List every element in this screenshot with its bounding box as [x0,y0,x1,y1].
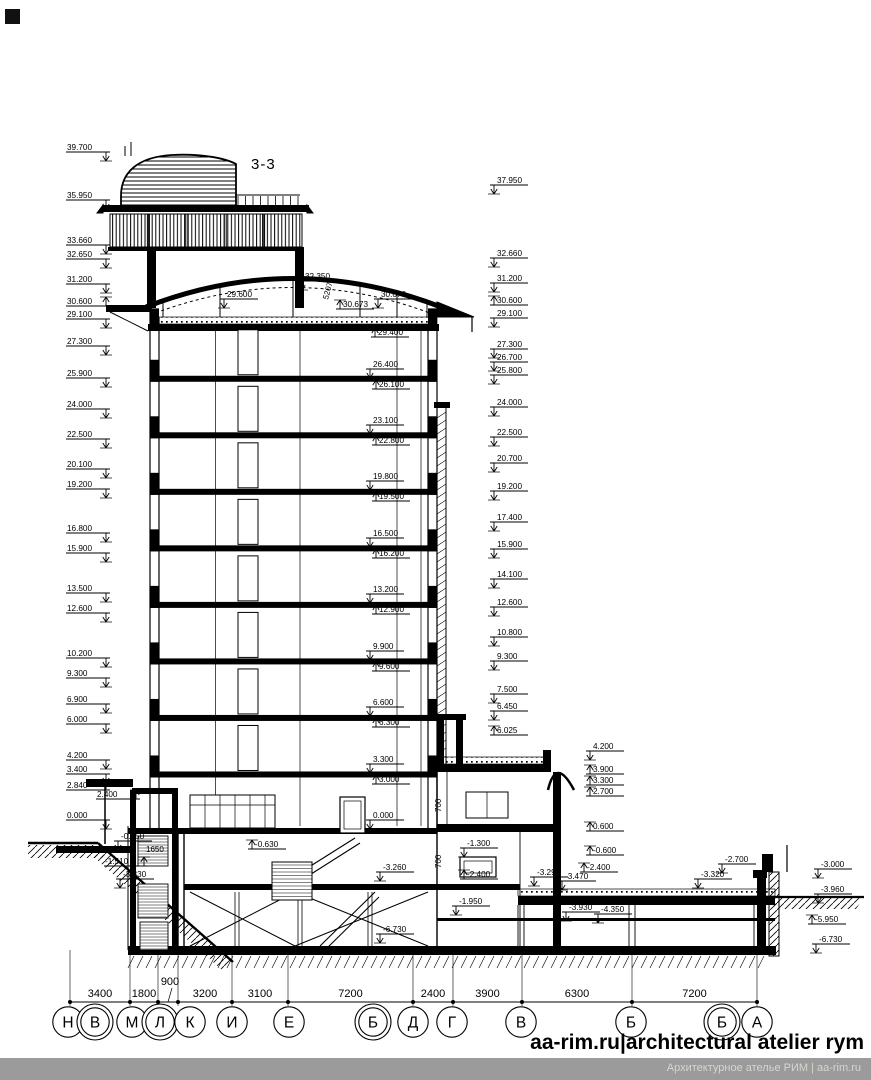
level-mark-label: 39.700 [67,143,92,152]
level-mark-label: 37.950 [497,176,522,185]
level-mark-label: 27.300 [497,340,522,349]
level-mark-label: 3.400 [67,765,88,774]
axis-label: Е [284,1015,294,1032]
dimension-label: 1800 [132,988,156,1000]
level-mark-label: -2.400 [587,863,611,872]
level-mark-label: 12.600 [67,604,92,613]
level-mark-label: -3.930 [569,903,593,912]
level-mark-label: 30.070 [381,290,406,299]
dimension-label: 3900 [475,988,499,1000]
level-mark-label: 16.800 [67,524,92,533]
dimension-label: 7200 [338,988,362,1000]
axis-label: М [126,1015,139,1032]
level-mark-label: 0.600 [593,822,614,831]
axis-bubble: Д [398,1007,428,1037]
level-mark-label: 17.400 [497,513,522,522]
podium-basement [128,764,776,955]
level-mark-label: 6.450 [497,702,518,711]
level-mark-label: -2.400 [467,870,491,879]
level-mark-label: 0.000 [67,811,88,820]
level-mark-label: 29.100 [497,309,522,318]
level-mark-label: 31.200 [497,274,522,283]
level-mark-label: 6.000 [67,715,88,724]
level-mark-label: 10.200 [67,649,92,658]
axis-bubble: Е [274,1007,304,1037]
dimension-chain: 340018009003200310072002400390063007200 [68,950,759,1006]
level-mark-label: -3.330 [123,870,147,879]
level-mark-label: 15.900 [67,544,92,553]
dimension-label: 3400 [88,988,112,1000]
level-mark-label: 12.600 [497,598,522,607]
level-mark-label: -1.950 [459,897,483,906]
level-mark-label: 32.660 [497,249,522,258]
level-mark-label: 24.000 [497,398,522,407]
level-mark-label: 2.400 [97,790,118,799]
axis-bubble: Б [355,1004,391,1040]
level-mark-label: -3.960 [821,885,845,894]
level-mark-label: 6.025 [497,726,518,735]
level-mark-label: 31.200 [67,275,92,284]
level-mark-label: 10.800 [497,628,522,637]
level-mark-label: 16.200 [379,549,404,558]
level-mark-label: 6.300 [379,718,400,727]
level-mark-label: -2.700 [725,855,749,864]
level-mark-label: 27.300 [67,337,92,346]
level-mark-label: -1.510 [105,857,129,866]
level-mark-label: 9.300 [67,669,88,678]
axis-label: В [516,1015,526,1032]
level-mark-label: 32.650 [67,250,92,259]
axis-label: Л [155,1015,165,1032]
level-mark-label: -3.260 [383,863,407,872]
level-mark-label: 4.200 [593,742,614,751]
level-mark-label: 30.673 [343,300,368,309]
axis-bubble: К [175,1007,205,1037]
level-mark-label: 13.500 [67,584,92,593]
level-mark-label: -0.950 [121,832,145,841]
level-mark-label: 29.600 [227,290,252,299]
level-mark-label: 0.000 [373,811,394,820]
level-mark-label: 25.900 [67,369,92,378]
level-mark-label: -6.730 [383,925,407,934]
level-mark-label: 2.840 [67,781,88,790]
dimension-label: 3100 [248,988,272,1000]
level-mark-label: 9.300 [497,652,518,661]
annotation-label: 700 [434,798,443,812]
axis-label: Б [368,1015,378,1032]
right-level-marks: 37.95032.66031.20030.60029.10027.30026.7… [488,176,624,855]
level-mark-label: 9.600 [379,662,400,671]
axis-label: Д [408,1015,419,1032]
level-mark-label: -3.290 [537,868,561,877]
dimension-label: 2400 [421,988,445,1000]
level-mark-label: 33.660 [67,236,92,245]
axis-label: А [752,1015,763,1032]
level-mark-label: 23.100 [373,416,398,425]
level-mark-label: 29.400 [378,328,403,337]
annotation-label: 1650 [146,845,164,854]
level-mark-label: 12.900 [379,605,404,614]
axis-label: Б [717,1015,727,1032]
level-mark-label: -1.300 [467,839,491,848]
level-mark-label: 7.500 [497,685,518,694]
level-mark-label: 2.700 [593,787,614,796]
level-mark-label: 20.700 [497,454,522,463]
left-level-marks: 39.70035.95033.66032.65031.20030.60029.1… [66,143,150,866]
level-mark-label: 19.500 [379,492,404,501]
axis-label: И [226,1015,237,1032]
tower [106,279,474,835]
level-mark-label: -5.950 [815,915,839,924]
level-mark-label: 22.500 [497,428,522,437]
annotation-label: 5207 [321,280,334,300]
level-mark-label: 15.900 [497,540,522,549]
level-mark-label: -6.730 [819,935,843,944]
penthouse-dome [97,142,313,308]
level-mark-label: -0.630 [255,840,279,849]
level-mark-label: 26.700 [497,353,522,362]
level-mark-label: 3.900 [593,765,614,774]
level-mark-label: -0.600 [593,846,617,855]
level-mark-label: 30.600 [67,297,92,306]
axis-bubble: Л [142,1004,178,1040]
annotation-label: 700 [434,854,443,868]
level-mark-label: 32.350 [305,272,330,281]
level-mark-label: 25.800 [497,366,522,375]
level-mark-label: -3.470 [565,872,589,881]
level-mark-label: 22.500 [67,430,92,439]
footer-bar-text: Архитектурное ателье РИМ | aa-rim.ru [667,1062,861,1074]
building-section-svg: 39.70035.95033.66032.65031.20030.60029.1… [0,0,871,1080]
level-mark-label: -3.000 [821,860,845,869]
dimension-label: 900 [161,976,179,988]
corner-mark [5,9,20,24]
level-mark-label: 16.500 [373,529,398,538]
level-mark-label: 3.300 [373,755,394,764]
level-mark-label: 20.100 [67,460,92,469]
level-mark-label: 24.000 [67,400,92,409]
level-mark-label: 26.100 [379,380,404,389]
level-mark-label: 6.600 [373,698,394,707]
axis-label: В [90,1015,100,1032]
axis-label: Г [448,1015,457,1032]
axis-label: Н [62,1015,73,1032]
level-mark-label: 6.900 [67,695,88,704]
axis-bubble: Г [437,1007,467,1037]
level-mark-label: 26.400 [373,360,398,369]
level-mark-label: 9.900 [373,642,394,651]
level-mark-label: 29.100 [67,310,92,319]
axis-bubble: И [217,1007,247,1037]
dimension-label: 6300 [565,988,589,1000]
level-mark-label: 19.800 [373,472,398,481]
level-mark-label: -4.350 [601,905,625,914]
axis-bubble: В [77,1004,113,1040]
footer-bar: Архитектурное ателье РИМ | aa-rim.ru [0,1058,871,1080]
level-mark-label: 3.000 [379,775,400,784]
section-drawing-sheet: 39.70035.95033.66032.65031.20030.60029.1… [0,0,871,1080]
watermark-brand: aa-rim.ru|architectural atelier rym [530,1031,864,1055]
dimension-label: 3200 [193,988,217,1000]
level-mark-label: 35.950 [67,191,92,200]
level-mark-label: 22.800 [379,436,404,445]
level-mark-label: 14.100 [497,570,522,579]
level-mark-label: 19.200 [497,482,522,491]
axis-label: К [185,1015,194,1032]
level-mark-label: 13.200 [373,585,398,594]
level-mark-label: 30.600 [497,296,522,305]
level-mark-label: 4.200 [67,751,88,760]
dimension-label: 7200 [682,988,706,1000]
axis-label: Б [626,1015,636,1032]
level-mark-label: 19.200 [67,480,92,489]
section-title: 3-3 [251,156,276,173]
level-mark-label: 3.300 [593,776,614,785]
